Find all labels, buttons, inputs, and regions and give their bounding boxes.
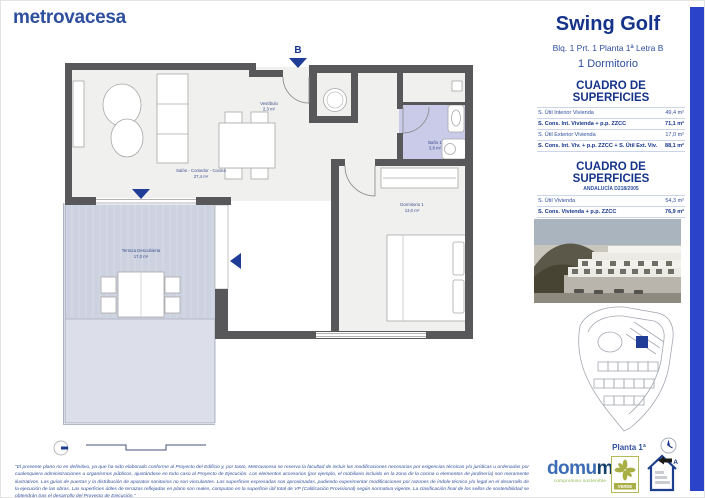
surface-row: S. Útil Exterior Vivienda 17,0 m² bbox=[537, 129, 685, 140]
energy-rating-label: A bbox=[673, 459, 678, 466]
unit-reference: Blq. 1 Prt. 1 Planta 1ª Letra B bbox=[518, 43, 698, 53]
accent-bar bbox=[690, 7, 704, 491]
domum-tagline: compromiso sostenible bbox=[541, 479, 619, 484]
domum-name: domu bbox=[547, 458, 597, 479]
energy-rating-icon: A bbox=[645, 451, 679, 494]
sheet-header: Swing Golf Blq. 1 Prt. 1 Planta 1ª Letra… bbox=[518, 13, 698, 70]
table-title: CUADRO DE SUPERFICIES bbox=[537, 161, 685, 185]
site-plan-thumbnail bbox=[566, 304, 676, 432]
scale-bar bbox=[45, 439, 220, 459]
building-render-photo bbox=[534, 219, 681, 303]
room-label-vestibulo: Vestíbulo bbox=[260, 101, 278, 106]
unit-type: 1 Dormitorio bbox=[518, 58, 698, 70]
metrovacesa-logo: metrovacesa bbox=[13, 7, 126, 29]
disclaimer-text: "El presente plano no es definitivo, ya … bbox=[15, 464, 529, 498]
surface-table-general: CUADRO DE SUPERFICIES S. Útil Interior V… bbox=[537, 80, 685, 152]
floor-plan: B Vestíbulo 2,3 m² Salón - Comedor - Coc… bbox=[41, 37, 501, 437]
surface-row: S. Útil Vivienda 54,3 m² bbox=[537, 195, 685, 206]
plan-sheet: metrovacesa Swing Golf Blq. 1 Prt. 1 Pla… bbox=[0, 0, 705, 498]
room-area-vestibulo: 2,3 m² bbox=[263, 107, 276, 112]
verde-cert-logo: VERDE bbox=[611, 456, 639, 493]
room-area-dormitorio: 13,0 m² bbox=[405, 208, 420, 213]
surface-row: S. Útil Interior Vivienda 49,4 m² bbox=[537, 107, 685, 118]
terrace-side-arrow-icon bbox=[230, 253, 241, 269]
table-subtitle: ANDALUCÍA D218/2005 bbox=[537, 186, 685, 192]
unit-letter-label: B bbox=[294, 45, 301, 56]
surface-tables: CUADRO DE SUPERFICIES S. Útil Interior V… bbox=[537, 80, 685, 242]
room-label-terraza: Terraza Descubierta bbox=[122, 248, 161, 253]
domum-logo: domum compromiso sostenible bbox=[541, 459, 619, 484]
development-title: Swing Golf bbox=[518, 13, 698, 36]
surface-row: S. Cons. Vivienda + p.p. ZZCC 76,9 m² bbox=[537, 206, 685, 218]
verde-label: VERDE bbox=[618, 484, 633, 489]
room-area-terraza: 17,0 m² bbox=[134, 254, 149, 259]
entrance-arrow-icon bbox=[289, 58, 307, 68]
room-label-salon: Salón - Comedor - Cocina bbox=[176, 168, 226, 173]
surface-row: S. Cons. Int. Vivienda + p.p. ZZCC 71,1 … bbox=[537, 118, 685, 129]
unit-location-marker bbox=[636, 336, 648, 348]
table-title: CUADRO DE SUPERFICIES bbox=[537, 80, 685, 104]
room-label-dormitorio: Dormitorio 1 bbox=[400, 202, 424, 207]
room-area-bano: 3,8 m² bbox=[429, 146, 442, 151]
surface-row: S. Cons. Int. Viv. + p.p. ZZCC + S. Útil… bbox=[537, 140, 685, 152]
room-area-salon: 27,4 m² bbox=[194, 174, 209, 179]
room-label-bano: Baño 1 bbox=[428, 140, 442, 145]
